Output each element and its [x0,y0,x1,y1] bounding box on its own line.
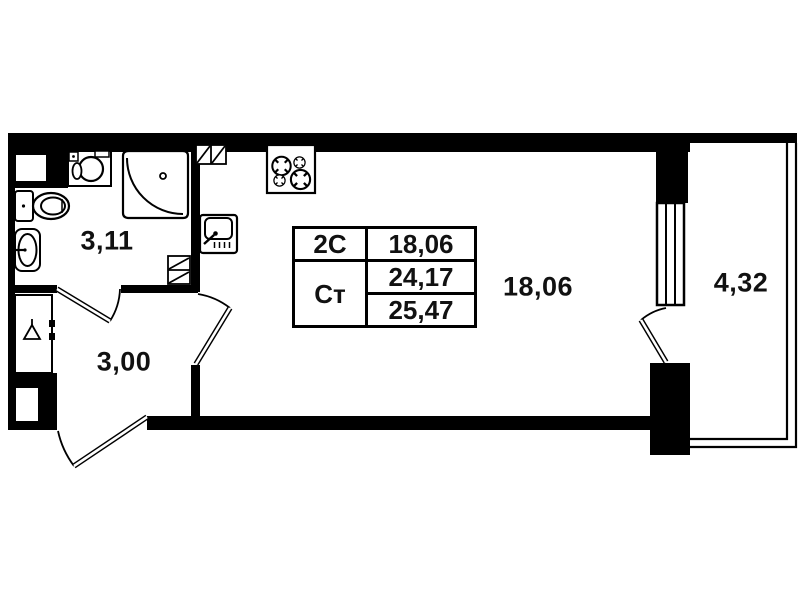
toilet-icon [15,191,69,221]
wall-top-balcony [688,133,797,143]
room-label-bathroom: 3,11 [80,226,133,257]
wardrobe [15,295,55,373]
wall-top [8,133,690,152]
washbasin-cabinet-icon [68,151,111,186]
wall-bath-south-left [8,285,57,293]
corner-shower-icon [123,151,188,218]
studio-type-cell: Ст [294,261,367,327]
unit-type-cell: 2С [294,228,367,261]
wardrobe-handle [49,320,55,327]
living-area-cell: 24,17 [367,261,476,294]
unit-area-cell: 18,06 [367,228,476,261]
wall-niche-bottom [16,388,38,421]
kitchen-sink-icon [200,215,237,253]
total-area-cell: 25,47 [367,294,476,327]
wall-door-stub [191,365,200,417]
room-label-living: 18,06 [503,272,573,303]
wall-bath-south-right [121,285,198,293]
wall-balcony-pillar-bottom [650,363,690,455]
entry-door [58,417,147,466]
vent-shaft-icon [196,145,226,164]
door-swing-icon [198,294,230,308]
door-swing-icon [110,289,120,321]
vent-shaft-icon [168,256,190,284]
door-swing-icon [58,431,74,466]
table-row: Ст 24,17 [294,261,476,294]
wall-bottom [147,416,650,430]
stove-4-burner-icon [267,145,315,193]
floor-plan: 3,11 3,00 18,06 4,32 2С 18,06 Ст 24,17 2… [0,0,799,600]
wall-balcony-pillar-top [656,143,688,203]
wardrobe-handle [49,333,55,340]
table-row: 2С 18,06 [294,228,476,261]
room-label-hallway: 3,00 [97,347,152,378]
wall-niche-top [16,155,46,181]
bathroom-door [57,289,120,321]
living-room-door [196,294,230,364]
oval-sink-icon [14,229,40,271]
balcony-door [641,308,666,362]
door-swing-icon [641,308,666,320]
room-label-balcony: 4,32 [714,268,769,299]
area-summary-table: 2С 18,06 Ст 24,17 25,47 [292,226,477,328]
window-icon [657,203,684,305]
